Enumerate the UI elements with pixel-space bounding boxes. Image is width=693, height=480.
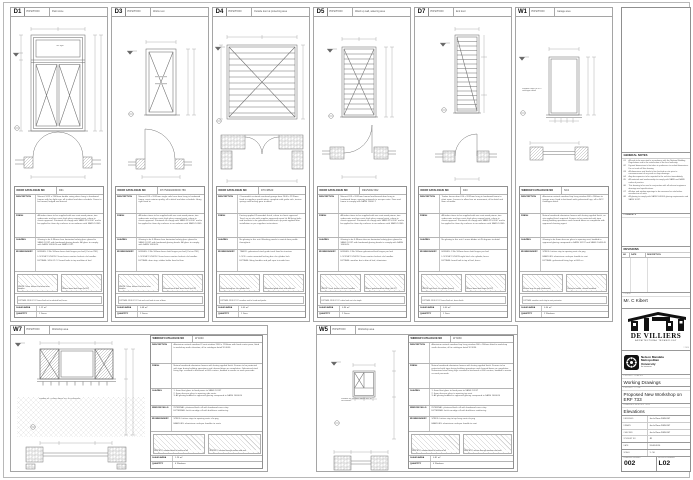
window-detail-image: WISPECO section through transom and vent <box>463 434 512 454</box>
ironmongery-photo: 100mm galvanised butt hinge (ref 02) <box>364 274 405 292</box>
ironmongery-photo: UNION 2 lever lockset c/w brass lever ha… <box>17 274 58 292</box>
catalogue-no: W 3030 <box>451 336 513 342</box>
w7-drawing-note: Window sill 1700mm above FFL to coursewo… <box>39 398 85 400</box>
ironmongery-photo: Centre locking bar c/w cylinder lock <box>219 274 260 292</box>
university-name: Nelson Mandela Metropolitan University f… <box>639 356 664 369</box>
catalogue-no: D40 <box>461 187 507 194</box>
panel-w1: W1 POSITION Garage area <box>515 7 613 322</box>
d7-louvre-door-elevation-drawing <box>415 17 512 186</box>
catalogue-no: D79 38620 <box>259 187 305 194</box>
position-label: POSITION <box>328 8 353 16</box>
de-villiers-logo-icon <box>622 310 690 332</box>
panel-d7-header: D7 POSITION End door <box>415 8 511 17</box>
revision-number: L02 <box>657 460 691 467</box>
university-tagline: for tomorrow <box>641 366 664 369</box>
panel-d3-header: D3 POSITION Works rest <box>112 8 208 17</box>
project-title-section: PROJECT TITLE Proposed New Workshop on E… <box>622 387 690 404</box>
panel-id: D4 <box>213 8 227 16</box>
scale-row: SCALE1 : 50 <box>622 450 690 457</box>
drawing-description: Elevations <box>622 408 690 414</box>
panel-id: W7 <box>11 326 25 334</box>
window-detail-image: WISPECO window detail at head and sill <box>411 434 460 454</box>
catalogue-no: D90/SD02 802 <box>360 187 406 194</box>
project-title: Proposed New Workshop on ERF 733 <box>622 391 690 402</box>
position-label: POSITION <box>25 326 50 334</box>
d4-schedule-table: DOOR CATALOGUE NOD79 38620 DESCRIPTIONCh… <box>216 186 306 318</box>
extras-box: EXTRAS: SDS 02 CC hat and coat hook to r… <box>118 296 203 304</box>
ironmongery-photo: Cockspur handle, natural anodised <box>566 274 607 292</box>
client-section: CLIENT Mr. C Kibert <box>622 293 690 309</box>
ironmongery-photo: UNION 2 lever lockset c/w lever handles <box>320 274 361 292</box>
d4-garage-door-elevation-drawing <box>213 17 310 186</box>
fanlight-label: fan light <box>44 45 76 47</box>
panel-w7-header: W7 POSITION Workshop area <box>11 326 267 335</box>
catalogue-no: D61 <box>57 187 103 194</box>
date-value: 31-08-2010 <box>648 443 690 450</box>
panel-d3: D3 POSITION Works rest <box>111 7 209 322</box>
finish-text: All timber items to be supplied with one… <box>36 214 103 237</box>
signoff-table: DESIGNEDJac le Roux 20810147 DRAWNJac le… <box>622 416 690 443</box>
position-description: Paint store <box>50 8 107 16</box>
extras-box: EXTRAS: SDS 02 CC cabin hook set c/w sta… <box>320 296 405 304</box>
panel-d5: D5 POSITION Wash up wall, watering area <box>313 7 411 322</box>
d1-schedule-table: DOOR CATALOGUE NOD61 DESCRIPTIONMeranti … <box>14 186 104 318</box>
d7-schedule-table: DOOR CATALOGUE NOD40 DESCRIPTIONTimber l… <box>418 186 508 318</box>
firm-logo-block: DE VILLIERS ARCHITECTURAL TECHNOLOGY © 2… <box>622 309 690 351</box>
comments-section: COMMENTS <box>622 214 690 247</box>
project-status: Working Drawings <box>622 379 690 385</box>
position-description: Workshop area <box>356 326 517 334</box>
d5-door-elevation-drawing <box>314 17 411 186</box>
quantity-value: 2 Doors <box>37 312 103 318</box>
w5-drawing-note: Window sill 1500mm above FFL to coursewo… <box>341 398 381 403</box>
comments-label: COMMENTS <box>622 214 690 218</box>
panel-id: D5 <box>314 8 328 16</box>
blank-margin-area <box>622 8 690 153</box>
title-block-column: GENERAL NOTES 01All work to be executed … <box>621 7 691 472</box>
position-label: POSITION <box>530 8 555 16</box>
position-label: POSITION <box>25 8 50 16</box>
extras-box: EXTRAS: SDS 02 CC barrel bolt set, brass… <box>421 296 506 304</box>
drawing-number-row: DRAWING NUMBER 002 REVISION NUMBER L02 <box>622 457 690 471</box>
window-detail-image: WISPECO window detail at head and sill <box>153 434 206 454</box>
w5-window-elevation-drawing <box>317 335 408 471</box>
client-name: Mr. C Kibert <box>622 297 690 303</box>
position-label: POSITION <box>331 326 356 334</box>
panel-d7: D7 POSITION End door <box>414 7 512 322</box>
position-description: Garage area <box>555 8 612 16</box>
position-label: POSITION <box>126 8 151 16</box>
panel-id: W1 <box>516 8 530 16</box>
extras-box: EXTRAS: SDS 02 CC weather seal to head a… <box>219 296 304 304</box>
w1-schedule-table: WINDOW CATALOGUE NONC2 DESCRIPTIONAlumin… <box>519 186 609 318</box>
university-logo-block: Nelson Mandela Metropolitan University f… <box>622 351 690 375</box>
ironmongery-photo: Galvanised guide track and roller set <box>263 274 304 292</box>
window-detail-image: WISPECO section through mullion and vent <box>208 434 261 454</box>
firm-subtitle: ARCHITECTURAL TECHNOLOGY <box>622 340 690 343</box>
extras-box: EXTRAS: SDS 02 CC barrel bolt set to reb… <box>17 296 102 304</box>
catalogue-no: W 4040 <box>193 336 262 342</box>
panel-id: D7 <box>415 8 429 16</box>
project-status-section: PROJECT STATUS Working Drawings <box>622 375 690 387</box>
panel-d4: D4 POSITION Outside door at protecting a… <box>212 7 310 322</box>
d1-door-elevation-drawing <box>11 17 108 186</box>
ironmongery-photo: Friction stay c/w peg (aluminium) <box>522 274 563 292</box>
glazing-text: Glazing to be 6.38mm clear laminated saf… <box>36 238 103 249</box>
panel-id: D1 <box>11 8 25 16</box>
position-description: Wash up wall, watering area <box>353 8 410 16</box>
drawing-sheet: D1 POSITION Paint store <box>0 0 693 480</box>
position-label: POSITION <box>429 8 454 16</box>
position-description: Workshop area <box>50 326 267 334</box>
panel-w5: W5 POSITION Workshop area <box>316 325 518 472</box>
panel-id: W5 <box>317 326 331 334</box>
ironmongery-text: HINGES: 3 No 100mm brass butt hinges per… <box>36 250 103 271</box>
catalogue-no: D77/SD2020/MOD.786 <box>158 187 204 194</box>
w1-drawing-note: Window frame to NC2 catalogue detail <box>522 88 548 93</box>
date-row: DATE31-08-2010 <box>622 443 690 450</box>
firm-copyright: © 2010 <box>684 347 689 349</box>
d3-door-elevation-drawing <box>112 17 209 186</box>
w7-schedule-table: WINDOW CATALOGUE NOW 4040 DESCRIPTIONAlu… <box>150 335 263 469</box>
catalogue-no: NC2 <box>562 187 608 194</box>
nmmu-logo-icon <box>624 355 639 370</box>
extras-box: EXTRAS: weather seal strip to vent perim… <box>522 296 607 304</box>
glass-area-value: 1.12 m² <box>37 306 103 311</box>
general-notes: GENERAL NOTES 01All work to be executed … <box>622 153 690 214</box>
position-label: POSITION <box>227 8 252 16</box>
panel-id: D3 <box>112 8 126 16</box>
position-description: Works rest <box>151 8 208 16</box>
firm-name: DE VILLIERS <box>622 332 690 340</box>
panel-d5-header: D5 POSITION Wash up wall, watering area <box>314 8 410 17</box>
drawing-number: 002 <box>622 460 656 467</box>
catalogue-label: DOOR CATALOGUE NO <box>15 187 57 194</box>
ironmongery-photo: Samson barrel bolt, brass finish (ref 02… <box>162 274 203 292</box>
d5-schedule-table: DOOR CATALOGUE NOD90/SD02 802 DESCRIPTIO… <box>317 186 407 318</box>
position-description: End door <box>454 8 511 16</box>
ironmongery-photo: UNION 2 lever lockset c/w brass lever ha… <box>118 274 159 292</box>
ironmongery-photo: 100mm brass butt hinge (ref 02) <box>61 274 102 292</box>
drawing-description-section: DRAWING DESCRIPTION Elevations <box>622 404 690 416</box>
ironmongery-photo: 100mm brass butt hinge (ref 02) <box>465 274 506 292</box>
ironmongery-photo: UNION night latch c/w cylinder (brass) <box>421 274 462 292</box>
w5-schedule-table: WINDOW CATALOGUE NOW 3030 DESCRIPTIONAlu… <box>408 335 514 469</box>
panel-d4-header: D4 POSITION Outside door at protecting a… <box>213 8 309 17</box>
panel-w1-header: W1 POSITION Garage area <box>516 8 612 17</box>
panel-d1: D1 POSITION Paint store <box>10 7 108 322</box>
panel-w7: W7 POSITION Workshop area <box>10 325 268 472</box>
position-description: Outside door at protecting area <box>252 8 309 16</box>
panel-w5-header: W5 POSITION Workshop area <box>317 326 517 335</box>
revision-number-cell: REVISION NUMBER L02 <box>657 457 691 471</box>
w7-window-elevation-drawing <box>11 335 150 471</box>
description-text: Meranti 1613 x 2349mm double swing doors… <box>36 195 103 213</box>
w1-window-elevation-drawing <box>516 17 613 186</box>
revisions-empty-rows <box>622 258 690 292</box>
d3-schedule-table: DOOR CATALOGUE NOD77/SD2020/MOD.786 DESC… <box>115 186 205 318</box>
revisions-section: REVISIONS NO DATE DESCRIPTION <box>622 247 690 293</box>
scale-value: 1 : 50 <box>648 450 690 457</box>
panel-d1-header: D1 POSITION Paint store <box>11 8 107 17</box>
drawing-number-cell: DRAWING NUMBER 002 <box>622 457 657 471</box>
